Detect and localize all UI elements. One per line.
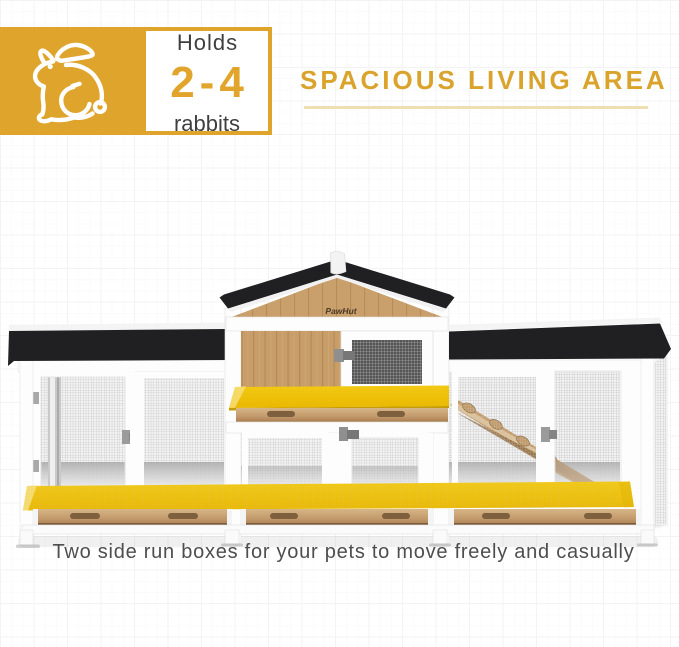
svg-text:PawHut: PawHut: [325, 306, 357, 316]
